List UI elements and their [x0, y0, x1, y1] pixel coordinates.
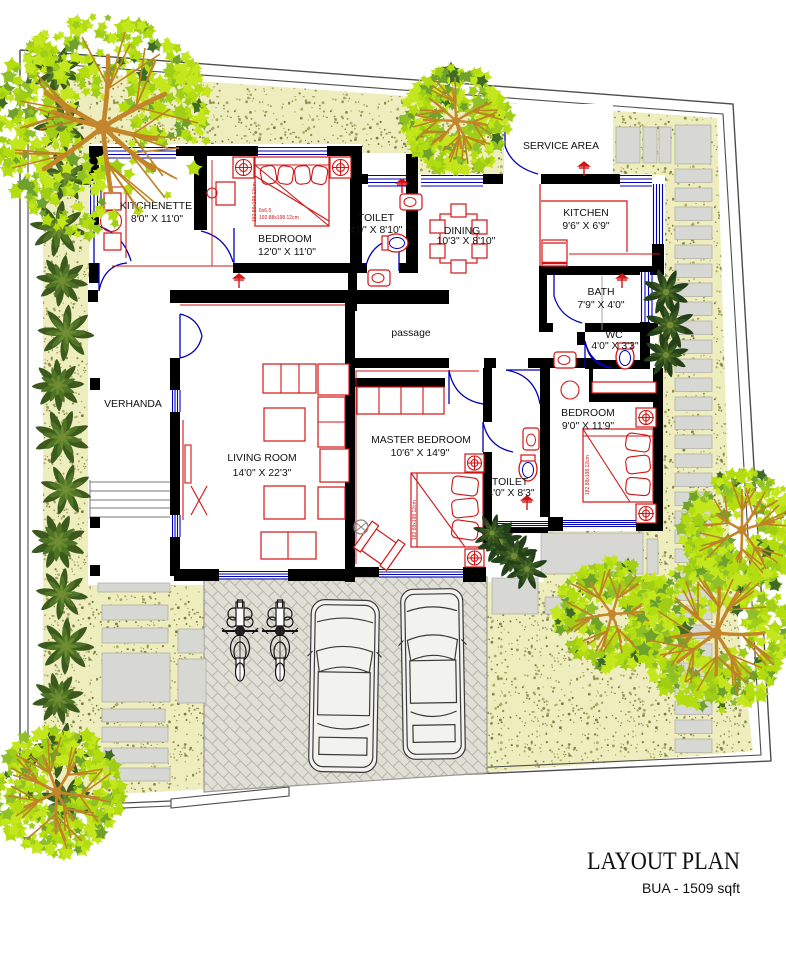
svg-text:4'0" X 8'3": 4'0" X 8'3": [487, 488, 534, 499]
svg-text:192.88x198.12cm: 192.88x198.12cm: [259, 215, 299, 221]
svg-text:6x6.5: 6x6.5: [259, 208, 271, 214]
svg-text:BEDROOM: BEDROOM: [258, 234, 312, 245]
svg-text:14'0" X 22'3": 14'0" X 22'3": [233, 468, 292, 479]
svg-text:BATH: BATH: [588, 287, 615, 298]
svg-text:182.88x198.12cm: 182.88x198.12cm: [585, 455, 591, 495]
svg-text:SERVICE AREA: SERVICE AREA: [523, 141, 599, 152]
svg-text:182.88x198.12cm: 182.88x198.12cm: [412, 500, 418, 540]
svg-text:KITCHENETTE: KITCHENETTE: [120, 201, 192, 212]
svg-text:KITCHEN: KITCHEN: [563, 208, 609, 219]
svg-text:MASTER BEDROOM: MASTER BEDROOM: [371, 435, 471, 446]
svg-text:4'0" X 8'10": 4'0" X 8'10": [350, 225, 403, 236]
svg-text:WC: WC: [605, 330, 623, 341]
svg-text:182.88x198.12cm: 182.88x198.12cm: [252, 182, 258, 222]
svg-text:10'3" X 8'10": 10'3" X 8'10": [437, 236, 496, 247]
svg-text:7'9" X 4'0": 7'9" X 4'0": [577, 300, 624, 311]
svg-text:passage: passage: [391, 328, 431, 339]
svg-text:10'6" X 14'9": 10'6" X 14'9": [391, 448, 450, 459]
svg-text:TOILET: TOILET: [358, 213, 395, 224]
svg-text:BUA - 1509 sqft: BUA - 1509 sqft: [642, 880, 740, 896]
svg-text:4'0" X 3'3": 4'0" X 3'3": [591, 341, 638, 352]
svg-text:LIVING ROOM: LIVING ROOM: [227, 453, 296, 464]
svg-text:TOILET: TOILET: [492, 477, 529, 488]
svg-text:LAYOUT PLAN: LAYOUT PLAN: [587, 846, 740, 875]
svg-text:12'0" X 11'0": 12'0" X 11'0": [258, 247, 316, 258]
svg-text:9'0" X 11'9": 9'0" X 11'9": [562, 421, 614, 432]
svg-text:VERHANDA: VERHANDA: [104, 399, 162, 410]
svg-text:9'6" X 6'9": 9'6" X 6'9": [562, 221, 609, 232]
svg-text:BEDROOM: BEDROOM: [561, 408, 615, 419]
